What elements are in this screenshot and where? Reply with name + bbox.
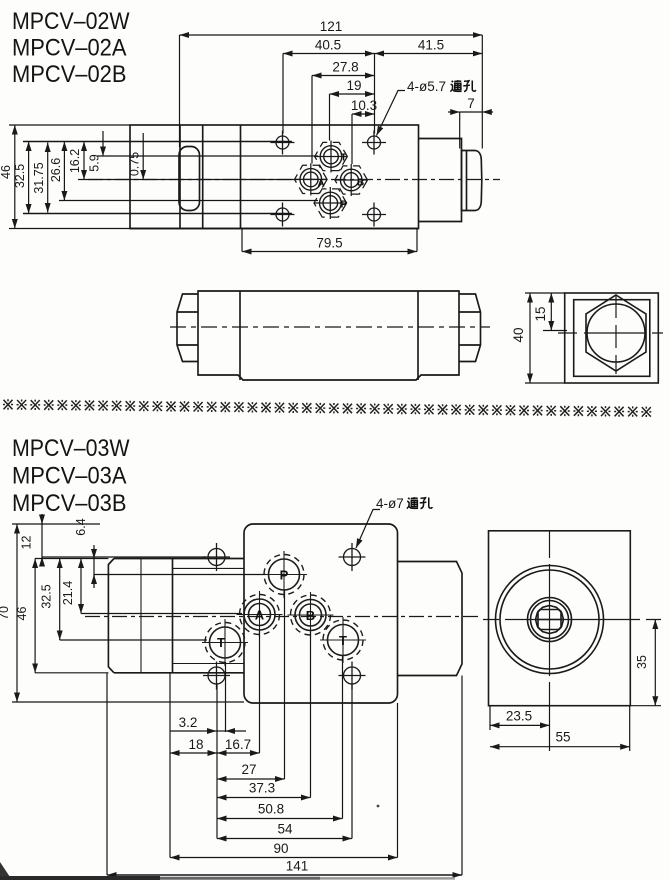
- svg-text:55: 55: [555, 730, 570, 745]
- svg-text:32.5: 32.5: [40, 584, 54, 608]
- svg-text:4-ø5.7: 4-ø5.7: [407, 79, 446, 94]
- svg-text:50.8: 50.8: [258, 802, 284, 817]
- svg-text:15: 15: [533, 306, 548, 321]
- svg-text:23.5: 23.5: [506, 709, 532, 724]
- svg-text:121: 121: [320, 19, 343, 34]
- svg-text:41.5: 41.5: [418, 38, 444, 53]
- svg-text:7: 7: [467, 96, 475, 111]
- svg-text:B: B: [357, 178, 364, 189]
- svg-text:46: 46: [15, 607, 29, 621]
- svg-text:MPCV–03B: MPCV–03B: [12, 490, 127, 517]
- svg-text:16.2: 16.2: [68, 149, 82, 173]
- svg-text:T: T: [339, 633, 347, 648]
- svg-text:90: 90: [273, 841, 288, 856]
- svg-text:35: 35: [635, 655, 649, 669]
- svg-text:MPCV–03W: MPCV–03W: [12, 435, 130, 462]
- svg-text:T: T: [341, 153, 347, 164]
- svg-text:18: 18: [188, 737, 203, 752]
- svg-text:27: 27: [241, 762, 256, 777]
- svg-text:5.9: 5.9: [88, 154, 102, 171]
- svg-text:27.8: 27.8: [332, 60, 358, 75]
- svg-text:P: P: [280, 568, 289, 583]
- svg-text:3.2: 3.2: [179, 715, 198, 730]
- svg-text:4-ø7: 4-ø7: [376, 496, 404, 511]
- svg-text:19: 19: [346, 78, 361, 93]
- svg-text:46: 46: [0, 165, 13, 179]
- svg-text:T: T: [217, 635, 225, 650]
- svg-text:MPCV–02W: MPCV–02W: [12, 8, 130, 35]
- svg-text:12: 12: [20, 536, 34, 550]
- svg-text:MPCV–02A: MPCV–02A: [12, 35, 127, 62]
- svg-text:40.5: 40.5: [315, 38, 341, 53]
- svg-text:P: P: [341, 200, 348, 211]
- svg-text:B: B: [306, 608, 315, 623]
- svg-text:32.5: 32.5: [13, 164, 27, 188]
- svg-text:A: A: [255, 608, 265, 623]
- svg-text:70: 70: [0, 606, 11, 620]
- svg-text:16.7: 16.7: [225, 737, 251, 752]
- svg-text:10.3: 10.3: [351, 98, 377, 113]
- svg-text:MPCV–03A: MPCV–03A: [12, 463, 127, 490]
- svg-text:A: A: [318, 179, 325, 190]
- svg-text:26.6: 26.6: [49, 158, 63, 182]
- svg-text:141: 141: [286, 859, 309, 874]
- svg-text:6.4: 6.4: [74, 518, 88, 535]
- svg-text:MPCV–02B: MPCV–02B: [12, 61, 127, 88]
- svg-text:31.75: 31.75: [32, 162, 46, 193]
- svg-text:0.75: 0.75: [128, 152, 142, 176]
- svg-text:79.5: 79.5: [316, 236, 342, 251]
- svg-text:40: 40: [511, 327, 526, 342]
- svg-text:21.4: 21.4: [61, 581, 75, 605]
- svg-text:37.3: 37.3: [249, 781, 275, 796]
- svg-text:54: 54: [277, 822, 293, 837]
